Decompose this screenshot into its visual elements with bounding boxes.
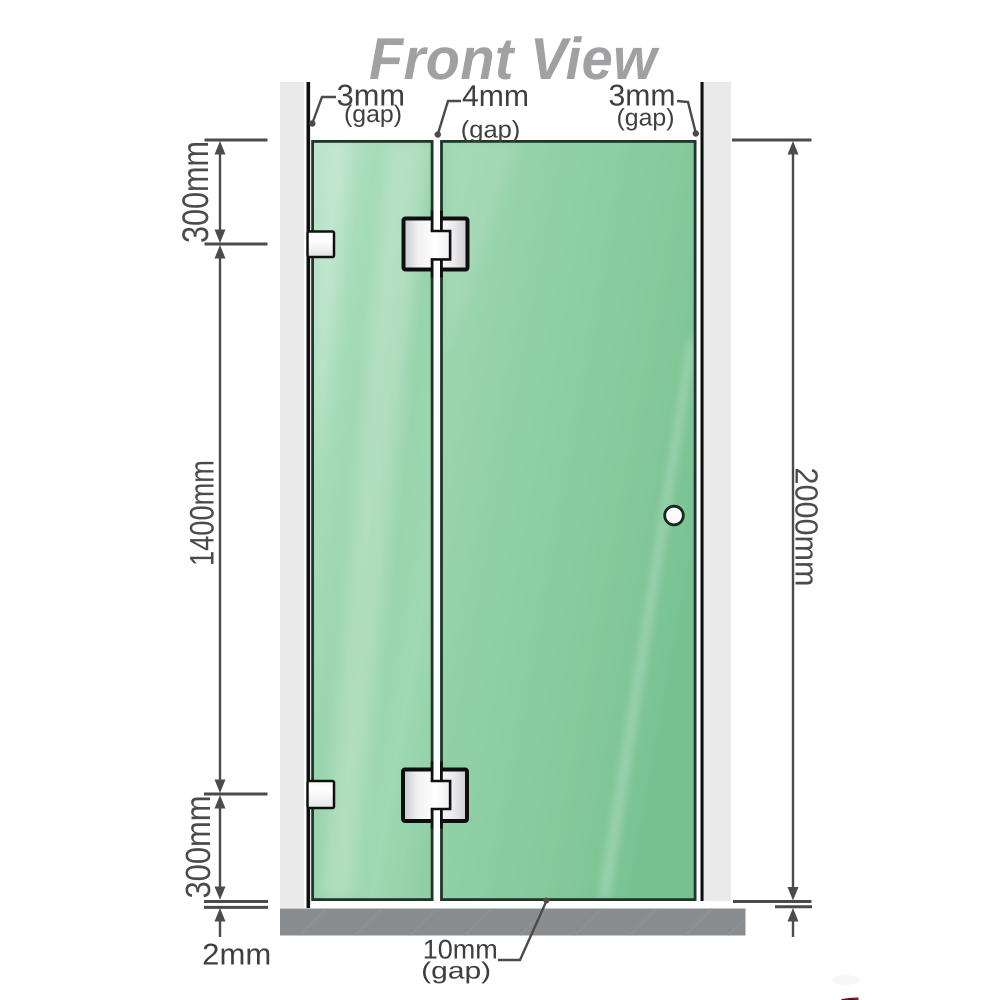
svg-text:1400mm: 1400mm xyxy=(184,460,222,566)
svg-text:2mm: 2mm xyxy=(202,938,271,971)
svg-text:(gap): (gap) xyxy=(617,105,675,132)
svg-text:300mm: 300mm xyxy=(179,796,218,899)
svg-text:(gap): (gap) xyxy=(344,101,402,128)
svg-text:(gap): (gap) xyxy=(421,958,491,984)
svg-text:2000mm: 2000mm xyxy=(789,468,825,587)
svg-text:300mm: 300mm xyxy=(175,141,216,243)
svg-text:(gap): (gap) xyxy=(461,116,521,143)
svg-text:4mm: 4mm xyxy=(462,80,529,113)
